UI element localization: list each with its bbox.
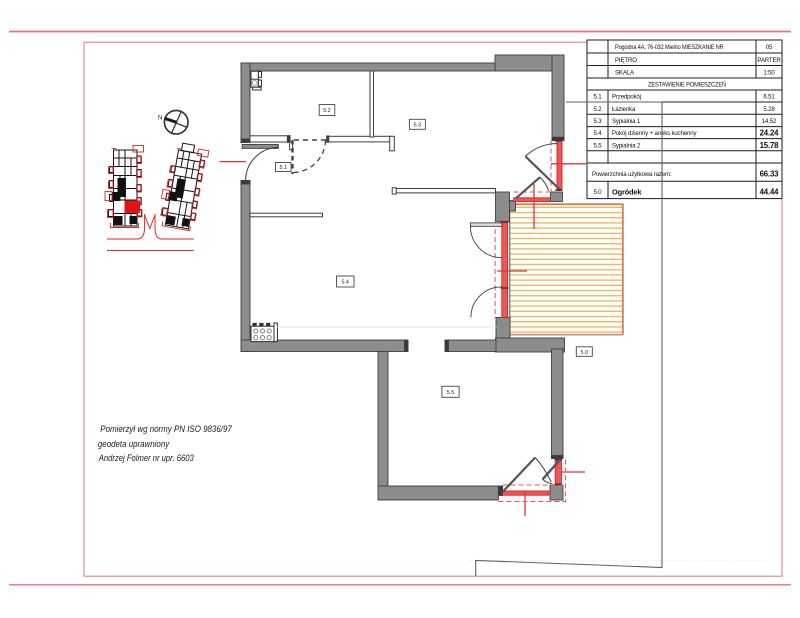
svg-text:5.0: 5.0: [593, 189, 602, 196]
svg-text:5.3: 5.3: [414, 122, 422, 128]
svg-text:24.24: 24.24: [760, 129, 780, 138]
svg-text:Pogodna 4A, 76-032 Mielno MIES: Pogodna 4A, 76-032 Mielno MIESZKANIE NR: [615, 44, 724, 51]
svg-text:14.52: 14.52: [762, 118, 777, 125]
svg-text:Sypialnia 1: Sypialnia 1: [612, 118, 641, 125]
svg-text:Pokój dzienny + aneks kuchenny: Pokój dzienny + aneks kuchenny: [612, 130, 698, 137]
svg-text:5.1: 5.1: [593, 94, 602, 101]
svg-text:5.1: 5.1: [279, 165, 287, 171]
svg-text:Powierzchnia użytkowa razem:: Powierzchnia użytkowa razem:: [592, 171, 672, 178]
svg-text:geodeta uprawniony: geodeta uprawniony: [98, 439, 170, 449]
svg-text:05: 05: [766, 44, 773, 51]
svg-text:Łazienka: Łazienka: [612, 106, 636, 113]
svg-text:ZESTAWIENIE POMIESZCZEŃ: ZESTAWIENIE POMIESZCZEŃ: [648, 80, 726, 89]
svg-text:Pomierzył wg normy PN ISO 983: Pomierzył wg normy PN ISO 9836/97: [100, 424, 232, 434]
svg-text:PIĘTRO: PIĘTRO: [615, 57, 637, 64]
svg-text:5.4: 5.4: [593, 130, 602, 137]
svg-text:5.2: 5.2: [323, 108, 331, 114]
svg-text:15.78: 15.78: [760, 141, 780, 150]
svg-text:5.28: 5.28: [763, 106, 775, 113]
svg-text:SKALA: SKALA: [615, 70, 635, 77]
svg-text:Przedpokój: Przedpokój: [612, 94, 641, 101]
svg-text:PARTER: PARTER: [757, 57, 781, 64]
svg-text:66.33: 66.33: [760, 169, 780, 178]
svg-text:1:50: 1:50: [763, 70, 775, 77]
svg-text:6.51: 6.51: [763, 94, 775, 101]
svg-text:5.4: 5.4: [341, 280, 349, 286]
svg-text:Ogródek: Ogródek: [612, 187, 642, 196]
svg-text:N: N: [158, 115, 162, 122]
svg-text:5.3: 5.3: [593, 118, 602, 125]
svg-text:5.2: 5.2: [593, 106, 602, 113]
svg-text:Sypialnia 2: Sypialnia 2: [612, 142, 641, 149]
svg-text:Andrzej Folmer nr upr. 6603: Andrzej Folmer nr upr. 6603: [98, 453, 194, 463]
svg-text:5.0: 5.0: [581, 350, 589, 356]
svg-text:5.5: 5.5: [593, 142, 602, 149]
svg-text:5.5: 5.5: [447, 390, 455, 396]
svg-text:44.44: 44.44: [760, 187, 780, 196]
